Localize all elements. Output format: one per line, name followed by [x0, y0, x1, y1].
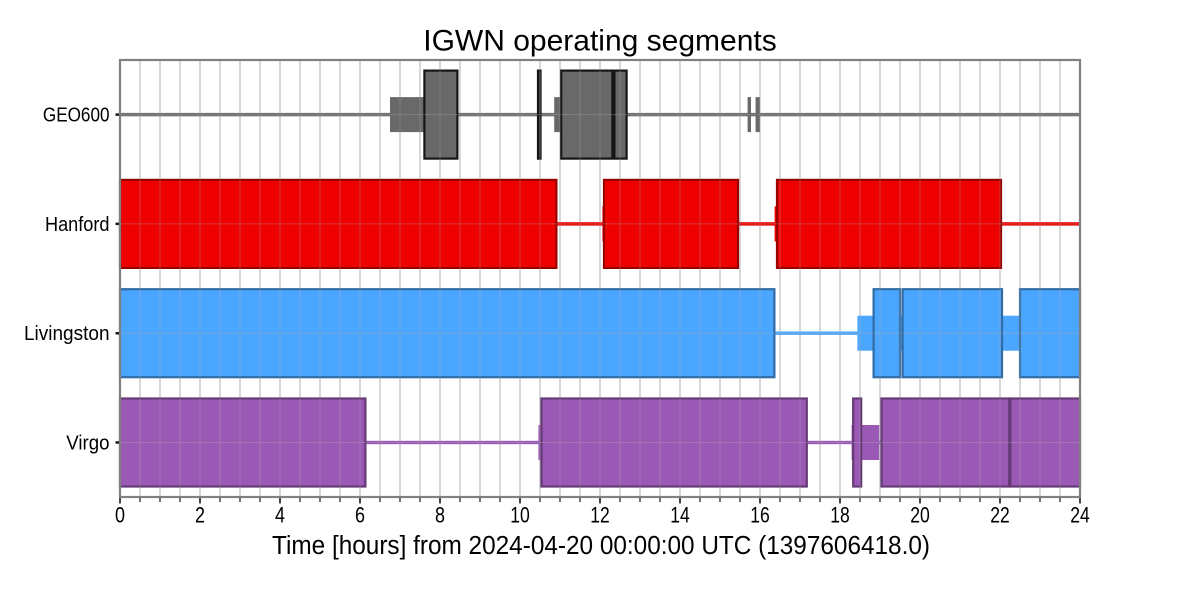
- svg-text:10: 10: [510, 503, 530, 528]
- svg-text:0: 0: [115, 503, 125, 528]
- svg-text:22: 22: [990, 503, 1010, 528]
- svg-text:2: 2: [195, 503, 205, 528]
- svg-text:4: 4: [275, 503, 285, 528]
- svg-text:Livingston: Livingston: [24, 322, 110, 345]
- svg-text:24: 24: [1070, 503, 1090, 528]
- svg-text:18: 18: [830, 503, 850, 528]
- svg-text:14: 14: [670, 503, 690, 528]
- svg-text:Virgo: Virgo: [66, 431, 109, 454]
- svg-text:Time [hours] from 2024-04-20 0: Time [hours] from 2024-04-20 00:00:00 UT…: [272, 532, 930, 560]
- svg-text:16: 16: [750, 503, 770, 528]
- svg-text:8: 8: [435, 503, 445, 528]
- svg-text:20: 20: [910, 503, 930, 528]
- svg-text:GEO600: GEO600: [43, 104, 110, 127]
- svg-text:6: 6: [355, 503, 365, 528]
- svg-text:Hanford: Hanford: [45, 213, 110, 236]
- svg-text:IGWN operating segments: IGWN operating segments: [423, 25, 776, 58]
- svg-text:12: 12: [590, 503, 610, 528]
